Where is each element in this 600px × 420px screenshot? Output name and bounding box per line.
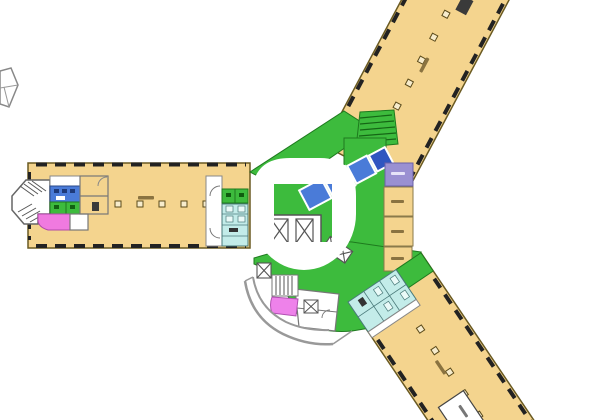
south-pink-room <box>271 297 299 316</box>
room-label-smudge <box>391 230 404 233</box>
room-label-smudge <box>138 196 154 200</box>
west-pink-room <box>38 214 70 230</box>
room-label-smudge <box>391 257 404 260</box>
west-green-room <box>50 202 80 214</box>
west-wing <box>12 163 250 248</box>
west-toilet-room <box>50 186 80 202</box>
adjacent-structure-outline <box>0 68 18 107</box>
floorplan-drawing <box>0 0 600 420</box>
south-rooms <box>295 289 339 331</box>
room-label-smudge <box>391 172 405 175</box>
floorplan-canvas <box>0 0 600 420</box>
core-stair-south <box>272 275 298 296</box>
room-label-smudge <box>391 200 404 203</box>
duct-shaft <box>92 202 99 211</box>
elevator-shaft-west <box>257 263 271 278</box>
east-room-column <box>384 163 413 271</box>
small-room <box>50 176 80 186</box>
elevator-shaft <box>304 300 318 313</box>
toilet-block-west <box>222 204 248 246</box>
